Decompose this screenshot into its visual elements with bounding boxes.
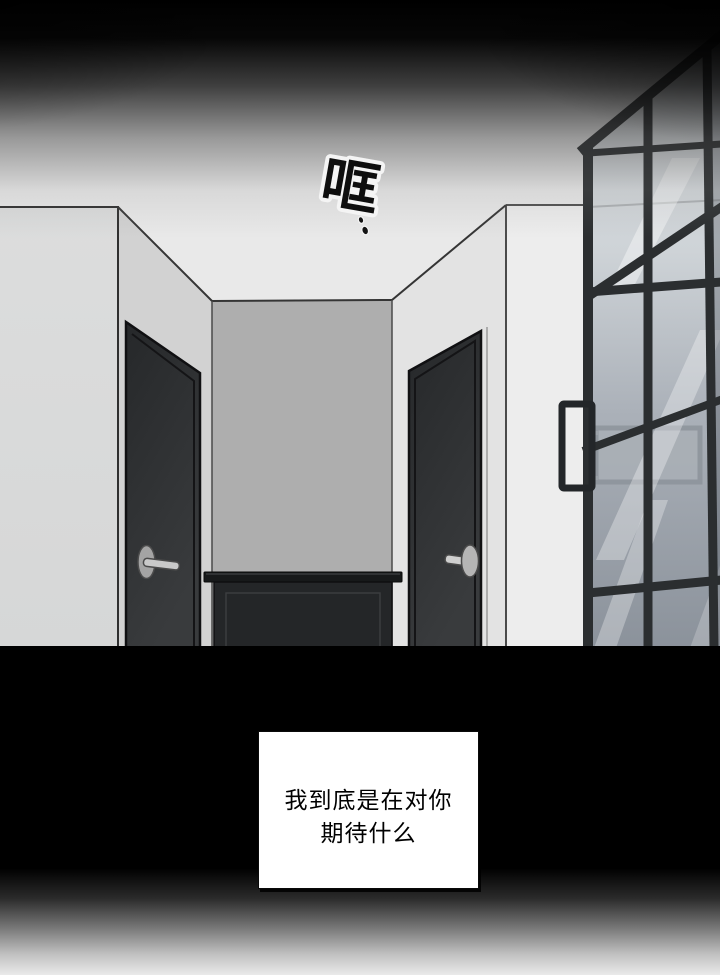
door-right-panel <box>409 331 481 648</box>
sfx-drip-dot <box>361 225 370 235</box>
console-cabinet <box>204 572 402 653</box>
sfx-layer: 哐 <box>0 0 720 300</box>
door-left <box>126 322 200 648</box>
comic-panel: 哐 我到底是在对你 期待什么 <box>0 0 720 975</box>
caption-box: 我到底是在对你 期待什么 <box>258 731 479 889</box>
caption-text-line2: 期待什么 <box>321 817 417 850</box>
sfx-text: 哐 <box>316 150 384 224</box>
door-right <box>409 327 487 648</box>
caption-text-line1: 我到底是在对你 <box>285 784 453 817</box>
handle-plate-icon <box>462 545 479 577</box>
cabinet-body <box>214 582 392 648</box>
door-left-panel <box>126 322 200 648</box>
